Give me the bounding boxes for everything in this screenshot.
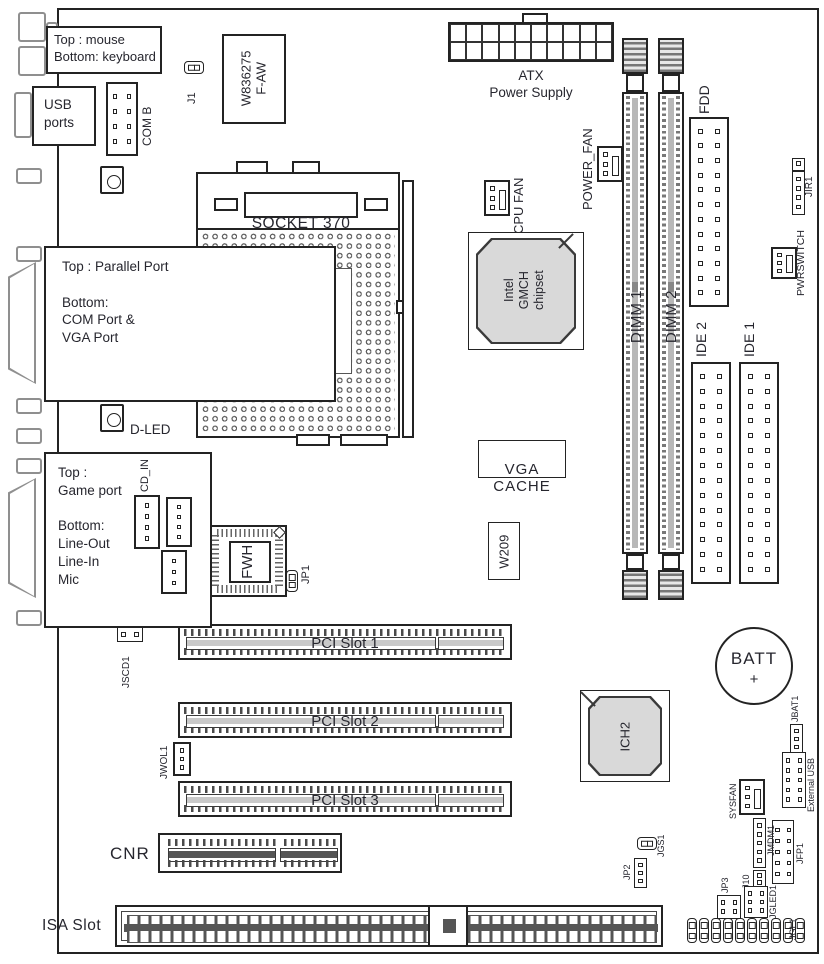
pin — [775, 861, 780, 866]
atx-cell — [466, 42, 482, 60]
pin — [715, 187, 720, 192]
pwrswitch-connector — [771, 247, 797, 279]
fwh-pins-left — [211, 535, 219, 587]
pin — [145, 514, 150, 519]
pin — [765, 433, 770, 438]
pin — [765, 389, 770, 394]
pin — [765, 493, 770, 498]
pin — [715, 246, 720, 251]
panel-bump-5 — [16, 458, 42, 474]
pin — [757, 873, 762, 878]
jfp1-label: JFP1 — [796, 843, 805, 864]
pin — [748, 448, 753, 453]
atx-cell — [596, 24, 612, 42]
atx-cell — [563, 24, 579, 42]
pin — [786, 788, 791, 793]
jp2-label: JP2 — [623, 864, 632, 880]
cpu-fan-label: CPU FAN — [512, 178, 525, 234]
atx-cell — [580, 24, 596, 42]
dimm1-latch-bottom — [622, 570, 648, 600]
pin — [700, 404, 705, 409]
pin — [748, 389, 753, 394]
mouse-keyboard-label: Top : mouse Bottom: keyboard — [54, 31, 156, 65]
atx-cell — [499, 42, 515, 60]
socket370-lever-nub — [396, 300, 404, 314]
jp1-jumper — [286, 570, 298, 592]
pin — [798, 768, 803, 773]
ps2-keyboard-port — [18, 46, 46, 76]
external-usb-label: External USB — [807, 758, 816, 812]
pin — [733, 909, 738, 914]
atx-label: ATX Power Supply — [448, 68, 614, 102]
panel-bump-3 — [16, 398, 42, 414]
pin — [717, 522, 722, 527]
pin — [113, 94, 118, 99]
pin — [777, 261, 782, 266]
pin — [775, 872, 780, 877]
pin — [700, 508, 705, 513]
pin — [698, 173, 703, 178]
pin — [172, 581, 177, 586]
pin — [698, 143, 703, 148]
power-fan-label: POWER_FAN — [581, 128, 594, 210]
jwol1-connector — [173, 742, 191, 776]
pin — [698, 187, 703, 192]
pin — [794, 745, 799, 750]
game-port-label: Top : Game port Bottom: Line-Out Line-In… — [58, 464, 122, 589]
pin — [715, 129, 720, 134]
jir1-label: JIR1 — [805, 176, 815, 197]
pin — [717, 478, 722, 483]
pin — [717, 508, 722, 513]
atx-cell — [563, 42, 579, 60]
pin — [113, 109, 118, 114]
pin — [748, 418, 753, 423]
pin — [748, 567, 753, 572]
pin — [757, 880, 762, 885]
panel-bump-4 — [16, 428, 42, 444]
jgl1-pill — [723, 918, 733, 943]
external-usb-header — [782, 752, 806, 808]
pin — [698, 232, 703, 237]
sysfan-connector — [739, 779, 765, 815]
super-io-label: W836275 F-AW — [239, 38, 270, 118]
pin — [796, 195, 801, 200]
pin — [715, 290, 720, 295]
pin — [127, 124, 132, 129]
dsub-connector-upper — [8, 262, 36, 384]
pin — [765, 537, 770, 542]
jgled1-label: JGLED1 — [769, 885, 778, 919]
jscd1-label: JSCD1 — [122, 656, 132, 688]
panel-bump-6 — [16, 610, 42, 626]
pin — [698, 290, 703, 295]
cnr-teeth-top-right — [284, 839, 336, 846]
pin — [490, 186, 495, 191]
atx-cell — [531, 42, 547, 60]
atx-cell — [482, 42, 498, 60]
atx-power-connector — [448, 22, 614, 62]
dimm2-latch-top — [658, 38, 684, 74]
pin — [121, 632, 126, 637]
pin — [757, 858, 762, 863]
pin — [717, 448, 722, 453]
socket370-label: SOCKET 370 — [252, 215, 351, 232]
pin — [180, 748, 185, 753]
jmdm1-label: JMDM1 — [767, 825, 776, 856]
pin — [700, 433, 705, 438]
pin — [717, 404, 722, 409]
jbat1-label: JBAT1 — [791, 696, 800, 722]
battery-label: BATT — [717, 649, 791, 669]
pin — [760, 908, 765, 913]
pin — [638, 879, 643, 884]
pin — [715, 158, 720, 163]
cnr-slot — [158, 833, 342, 873]
isa-label: ISA Slot — [42, 916, 101, 936]
pin — [490, 196, 495, 201]
vga-cache-label: VGA CACHE — [493, 461, 551, 496]
d-led-label: D-LED — [130, 421, 171, 439]
pin — [603, 152, 608, 157]
pin — [700, 537, 705, 542]
battery: BATT + — [715, 627, 793, 705]
pin — [603, 171, 608, 176]
pin — [715, 143, 720, 148]
pin — [721, 900, 726, 905]
pin — [700, 418, 705, 423]
w209-label: W209 — [496, 522, 511, 582]
dimm1-latch-top — [622, 38, 648, 74]
pin — [745, 804, 750, 809]
pin — [700, 552, 705, 557]
pin — [698, 217, 703, 222]
pin — [748, 433, 753, 438]
pin — [715, 202, 720, 207]
isa-slot — [115, 905, 663, 947]
pin — [180, 757, 185, 762]
pin — [698, 246, 703, 251]
pin — [715, 173, 720, 178]
com-b-header — [106, 82, 138, 156]
isa-teeth-bottom — [127, 930, 657, 943]
pin — [715, 261, 720, 266]
pin — [717, 418, 722, 423]
cpu-fan-tab — [499, 190, 506, 210]
pin — [717, 389, 722, 394]
pin — [765, 522, 770, 527]
pin — [786, 768, 791, 773]
cnr-teeth-bottom-right — [284, 860, 336, 867]
pin — [786, 758, 791, 763]
pin — [715, 276, 720, 281]
cnr-teeth-top-left — [168, 839, 276, 846]
pwrswitch-label: PWRSWITCH — [796, 230, 807, 296]
pin — [760, 891, 765, 896]
socket370-label-box: SOCKET 370 — [244, 192, 358, 218]
atx-cell — [515, 24, 531, 42]
pin — [127, 139, 132, 144]
jgl1-pill — [771, 918, 781, 943]
pin — [787, 828, 792, 833]
pin — [700, 463, 705, 468]
pin — [113, 124, 118, 129]
pin — [698, 158, 703, 163]
pin — [748, 537, 753, 542]
socket370-strip-rect-left — [214, 198, 238, 211]
jp3-label: JP3 — [721, 877, 730, 893]
pin — [700, 493, 705, 498]
panel-bump-1 — [16, 168, 42, 184]
cnr-teeth-bottom-left — [168, 860, 276, 867]
pin — [794, 737, 799, 742]
pin — [490, 205, 495, 210]
pwrswitch-tab — [786, 255, 793, 273]
pin — [760, 900, 765, 905]
isa-key-block — [428, 905, 468, 947]
dimm1-end-top — [626, 74, 644, 92]
pin — [145, 536, 150, 541]
atx-cell — [531, 24, 547, 42]
pin — [787, 850, 792, 855]
pin — [748, 908, 753, 913]
atx-cell — [499, 24, 515, 42]
pin — [786, 797, 791, 802]
pin — [765, 508, 770, 513]
pin — [748, 552, 753, 557]
pci-slot-3: PCI Slot 3 — [178, 781, 512, 817]
pci-slot-1: PCI Slot 1 — [178, 624, 512, 660]
dimm1-end-bottom — [626, 554, 644, 570]
pin — [798, 788, 803, 793]
cpu-fan-connector — [484, 180, 510, 216]
parallel-port-label: Top : Parallel Port Bottom: COM Port & V… — [62, 258, 169, 347]
pin — [717, 552, 722, 557]
pin — [798, 797, 803, 802]
dimm2-label: DIMM 2 — [663, 281, 681, 353]
pin — [113, 139, 118, 144]
pin — [796, 177, 801, 182]
ide1-connector — [739, 362, 779, 584]
pin — [127, 94, 132, 99]
atx-cell — [482, 24, 498, 42]
motherboard-diagram: Top : mouse Bottom: keyboard USB ports C… — [0, 0, 824, 964]
pin — [698, 261, 703, 266]
pin — [745, 795, 750, 800]
pin — [721, 909, 726, 914]
pin — [765, 448, 770, 453]
dimm2-end-bottom — [662, 554, 680, 570]
dsub-connector-lower — [8, 478, 36, 598]
d-led-shape — [100, 404, 124, 432]
usb-port-shape — [14, 92, 32, 138]
pin — [127, 109, 132, 114]
pin — [748, 508, 753, 513]
fdd-label: FDD — [697, 85, 711, 114]
pin — [177, 535, 182, 540]
pin — [765, 463, 770, 468]
sysfan-tab — [754, 789, 761, 809]
pin — [765, 374, 770, 379]
jgl1-pill — [687, 918, 697, 943]
pin — [717, 463, 722, 468]
pin — [700, 522, 705, 527]
isa-key-square — [443, 919, 456, 933]
j1-jumper — [184, 61, 204, 74]
pin — [603, 162, 608, 167]
pin — [765, 418, 770, 423]
jmdm1-header — [753, 818, 766, 868]
pin — [177, 525, 182, 530]
jgl1-pill — [759, 918, 769, 943]
pin — [717, 537, 722, 542]
jp1-label: JP1 — [301, 565, 312, 584]
jgl1-label: JGL1 — [789, 918, 798, 940]
jp3-header — [717, 895, 741, 919]
jgs1-jumper — [637, 837, 657, 850]
pin — [698, 276, 703, 281]
pin — [757, 832, 762, 837]
pin — [700, 389, 705, 394]
pci1-label: PCI Slot 1 — [180, 635, 510, 652]
cd-in-label: CD_IN — [140, 459, 151, 492]
pin — [798, 758, 803, 763]
pin — [700, 448, 705, 453]
pin — [796, 186, 801, 191]
socket370-strip-rect-right — [364, 198, 388, 211]
pin — [145, 503, 150, 508]
pin — [180, 765, 185, 770]
pin — [748, 891, 753, 896]
pin — [794, 729, 799, 734]
cnr-label: CNR — [110, 843, 150, 865]
pin — [777, 269, 782, 274]
pci-slot-2: PCI Slot 2 — [178, 702, 512, 738]
modem-in-connector — [161, 550, 187, 594]
power-fan-tab — [612, 156, 619, 176]
pin — [717, 374, 722, 379]
pin — [757, 841, 762, 846]
ps2-mouse-port — [18, 12, 46, 42]
pin — [638, 863, 643, 868]
pin — [177, 515, 182, 520]
atx-cell — [547, 24, 563, 42]
atx-cell — [466, 24, 482, 42]
atx-cell — [580, 42, 596, 60]
dimm2-latch-bottom — [658, 570, 684, 600]
socket370-bottom-tab-1 — [296, 434, 330, 446]
pin — [748, 463, 753, 468]
pin — [757, 823, 762, 828]
panel-bump-2 — [16, 246, 42, 262]
dimm1-label: DIMM 1 — [628, 281, 646, 353]
pin — [777, 253, 782, 258]
jgl1-pill — [747, 918, 757, 943]
usb-ports-label: USB ports — [44, 96, 74, 132]
pin — [715, 217, 720, 222]
pin — [177, 505, 182, 510]
pin — [172, 559, 177, 564]
transistor-shape-upper — [100, 166, 124, 194]
pin — [733, 900, 738, 905]
jgl1-pill — [735, 918, 745, 943]
pin — [765, 404, 770, 409]
jgled1-header — [744, 886, 768, 918]
pin — [787, 872, 792, 877]
vga-cache-box: VGA CACHE — [478, 440, 566, 478]
pin — [715, 232, 720, 237]
ide2-connector — [691, 362, 731, 584]
pin — [748, 404, 753, 409]
atx-cell — [596, 42, 612, 60]
pin — [745, 786, 750, 791]
socket370-bottom-tab-2 — [340, 434, 388, 446]
pin — [172, 570, 177, 575]
power-fan-connector — [597, 146, 623, 182]
jgl1-pill — [711, 918, 721, 943]
pin — [700, 567, 705, 572]
jbat1-header — [790, 724, 803, 754]
atx-cell — [450, 24, 466, 42]
battery-plus-label: + — [717, 671, 791, 688]
j1-label: J1 — [187, 92, 198, 104]
pin — [717, 493, 722, 498]
jgs1-label: JGS1 — [657, 834, 666, 857]
pin — [698, 202, 703, 207]
atx-cell — [515, 42, 531, 60]
ich2-label: ICH2 — [617, 702, 632, 772]
atx-cell — [450, 42, 466, 60]
pin — [700, 374, 705, 379]
pin — [786, 778, 791, 783]
pin — [765, 567, 770, 572]
pin — [748, 522, 753, 527]
pin — [796, 205, 801, 210]
fwh-label: FWH — [239, 532, 257, 592]
pin — [748, 493, 753, 498]
fdd-connector — [689, 117, 729, 307]
aux-in-connector — [166, 497, 192, 547]
pin — [765, 552, 770, 557]
jgl1-pill — [699, 918, 709, 943]
gmch-label: Intel GMCH chipset — [502, 245, 546, 335]
ide1-label: IDE 1 — [742, 322, 756, 357]
pin — [787, 839, 792, 844]
pin — [717, 567, 722, 572]
pci3-label: PCI Slot 3 — [180, 792, 510, 809]
pin — [757, 850, 762, 855]
pin — [638, 871, 643, 876]
atx-cell — [547, 42, 563, 60]
sysfan-label: SYSFAN — [729, 783, 738, 819]
jir1-pin1-box — [792, 158, 805, 171]
pin — [787, 861, 792, 866]
pin — [748, 478, 753, 483]
com-b-label: COM B — [141, 107, 153, 146]
jp2-header — [634, 858, 647, 888]
ide2-label: IDE 2 — [694, 322, 708, 357]
dimm2-end-top — [662, 74, 680, 92]
pin — [748, 374, 753, 379]
jwol1-label: JWOL1 — [160, 746, 170, 779]
pin — [134, 632, 139, 637]
pin — [698, 129, 703, 134]
pin — [717, 433, 722, 438]
pin — [748, 900, 753, 905]
pin — [700, 478, 705, 483]
pci2-label: PCI Slot 2 — [180, 713, 510, 730]
pin — [765, 478, 770, 483]
